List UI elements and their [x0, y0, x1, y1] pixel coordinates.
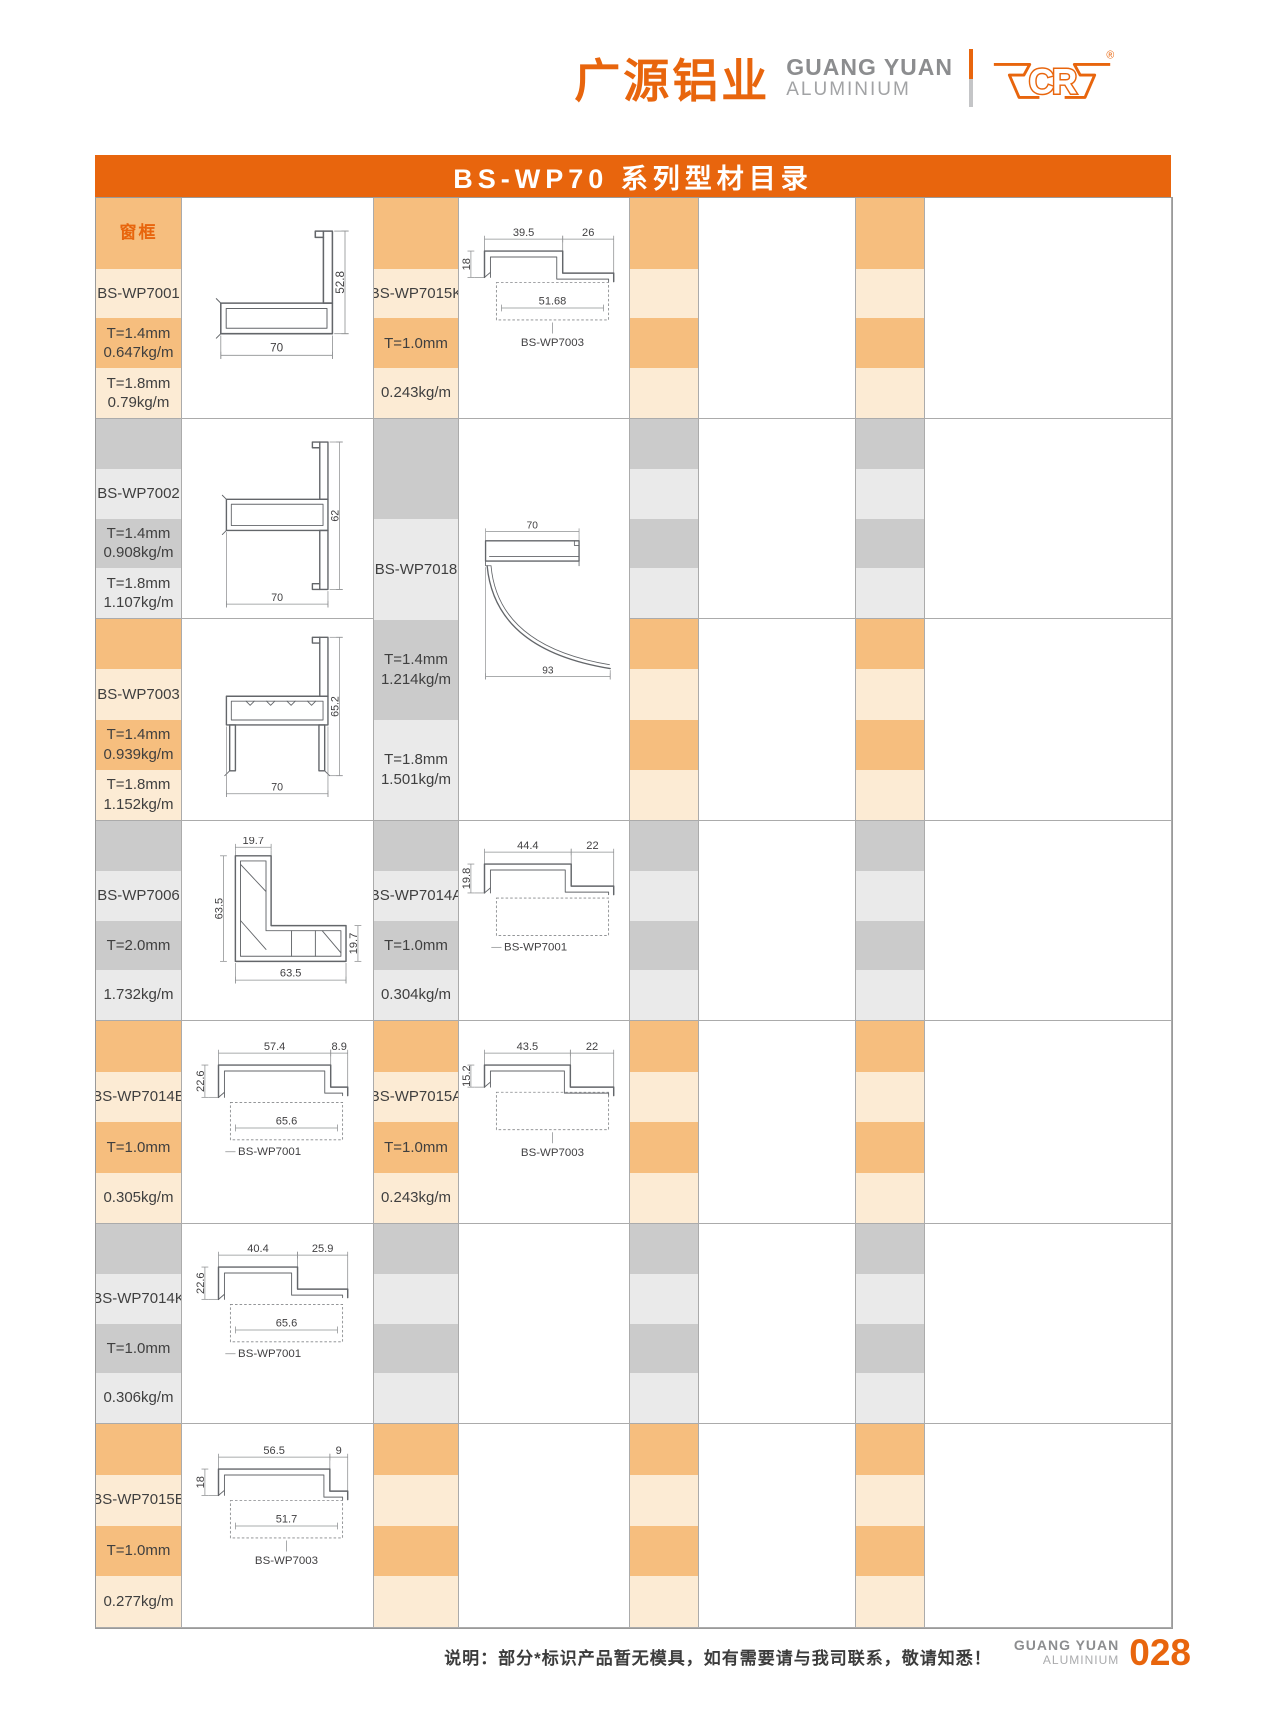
spec-band: T=1.0mm [374, 921, 458, 971]
spec-band [630, 568, 698, 618]
drawing-cell-bs-wp7015a: 43.52215.2BS-WP7003 [459, 1021, 630, 1224]
spec-band [630, 519, 698, 569]
profile-drawing-bs-wp7018: 7093 [462, 519, 626, 720]
product-code-band: BS-WP7018 [374, 519, 458, 619]
spec-band [630, 1122, 698, 1173]
label-cell [630, 419, 699, 619]
empty-cell [925, 198, 1172, 419]
band-header [96, 1021, 181, 1072]
catalog-page: 广源铝业 GUANG YUAN ALUMINIUM CR ® BS-WP70 系… [0, 0, 1277, 1721]
dim-label: 65.2 [329, 696, 341, 717]
drawing-cell-bs-wp7014a: 44.42219.8BS-WP7001 [459, 821, 630, 1021]
dim-label: 51.68 [539, 296, 567, 308]
label-cell [856, 419, 925, 619]
product-code: BS-WP7015B [96, 1490, 182, 1510]
product-code: BS-WP7002 [97, 484, 180, 504]
spec-band [856, 1122, 924, 1173]
band-header [630, 821, 698, 871]
band-header [856, 1224, 924, 1274]
label-cell [856, 1021, 925, 1224]
band-header [630, 619, 698, 669]
companion-label: BS-WP7003 [521, 1147, 584, 1159]
spec-line: T=1.0mm [107, 1339, 171, 1359]
spec-band: 1.732kg/m [96, 970, 181, 1020]
page-header: 广源铝业 GUANG YUAN ALUMINIUM CR ® [0, 0, 1277, 150]
spec-band: T=1.0mm [96, 1122, 181, 1173]
spec-band [630, 970, 698, 1020]
band-header [374, 821, 458, 871]
spec-band: 0.277kg/m [96, 1576, 181, 1627]
spec-band: T=1.0mm [96, 1324, 181, 1374]
dim-label: 19.8 [461, 867, 473, 889]
dim-label: 39.5 [513, 227, 535, 239]
dim-label: 56.5 [263, 1445, 285, 1457]
empty-cell [699, 1424, 856, 1628]
spec-line: T=1.0mm [384, 936, 448, 956]
label-cell [374, 1224, 459, 1424]
spec-line: T=1.8mm [384, 750, 448, 770]
profile-drawing-bs-wp7014b: 57.48.922.665.6BS-WP7001 [193, 1041, 363, 1203]
footer-brand-block: GUANG YUAN ALUMINIUM 028 [1014, 1634, 1191, 1671]
drawing-cell-bs-wp7014b: 57.48.922.665.6BS-WP7001 [182, 1021, 374, 1224]
dim-label: 22 [586, 840, 598, 852]
product-code-band [856, 669, 924, 719]
band-header [856, 1021, 924, 1072]
companion-label: BS-WP7003 [521, 337, 584, 349]
spec-line: T=1.8mm [107, 775, 171, 795]
profile-drawing-bs-wp7015k: 39.5261851.68BS-WP7003 [459, 227, 629, 389]
label-cell-bs-wp7003: BS-WP7003T=1.4mm0.939kg/mT=1.8mm1.152kg/… [96, 619, 182, 821]
product-code-band: BS-WP7014A [374, 871, 458, 921]
spec-band [856, 568, 924, 618]
spec-band [374, 1373, 458, 1423]
profile-drawing-bs-wp7015b: 56.591851.7BS-WP7003 [193, 1445, 363, 1607]
spec-line: T=1.4mm [384, 650, 448, 670]
product-code-band: BS-WP7001 [96, 269, 181, 319]
spec-line: 0.908kg/m [103, 543, 173, 563]
dim-label: 25.9 [311, 1243, 333, 1255]
series-title: BS-WP70 系列型材目录 [453, 157, 813, 196]
band-header [374, 1424, 458, 1475]
spec-band [630, 1576, 698, 1627]
companion-label: BS-WP7001 [238, 1146, 301, 1158]
profile-drawing-bs-wp7006: 19.763.563.519.7 [186, 837, 369, 1004]
category-label: 窗框 [120, 222, 158, 244]
dim-label: 18 [195, 1476, 207, 1488]
band-header [856, 821, 924, 871]
spec-line: T=1.8mm [107, 374, 171, 394]
product-code-band: BS-WP7002 [96, 469, 181, 519]
label-cell [856, 198, 925, 419]
label-cell-bs-wp7015a: BS-WP7015AT=1.0mm0.243kg/m [374, 1021, 459, 1224]
profile-drawing-bs-wp7015a: 43.52215.2BS-WP7003 [459, 1041, 629, 1203]
product-code-band: BS-WP7014B [96, 1072, 181, 1123]
product-code: BS-WP7003 [97, 685, 180, 705]
label-cell-bs-wp7014b: BS-WP7014BT=1.0mm0.305kg/m [96, 1021, 182, 1224]
spec-band [856, 1173, 924, 1224]
spec-band: T=1.0mm [374, 318, 458, 368]
spec-band: 0.306kg/m [96, 1373, 181, 1423]
dim-label: 43.5 [517, 1041, 539, 1053]
dim-label: 70 [271, 591, 283, 603]
band-header [630, 419, 698, 469]
spec-band: T=1.4mm0.908kg/m [96, 519, 181, 569]
dim-label: 15.2 [461, 1065, 473, 1087]
footer-brand-text: GUANG YUAN ALUMINIUM [1014, 1638, 1119, 1667]
spec-line: 0.305kg/m [103, 1188, 173, 1208]
spec-band: T=1.0mm [96, 1526, 181, 1577]
label-cell [630, 1224, 699, 1424]
spec-line: T=1.4mm [107, 324, 171, 344]
spec-line: T=1.0mm [107, 1138, 171, 1158]
product-code: BS-WP7014A [374, 886, 459, 906]
profile-table: 窗框BS-WP7001T=1.4mm0.647kg/mT=1.8mm0.79kg… [95, 197, 1173, 1629]
product-code: BS-WP7018 [375, 560, 458, 580]
spec-line: 0.243kg/m [381, 1188, 451, 1208]
brand-en-line1: GUANG YUAN [786, 55, 953, 79]
spec-line: T=1.0mm [107, 1541, 171, 1561]
band-header [96, 619, 181, 669]
spec-band [374, 1324, 458, 1374]
band-header [96, 1224, 181, 1274]
spec-line: T=1.0mm [384, 334, 448, 354]
brand-divider [969, 49, 973, 107]
product-code-band [630, 1475, 698, 1526]
drawing-cell-bs-wp7006: 19.763.563.519.7 [182, 821, 374, 1021]
dim-label: 65.6 [275, 1317, 297, 1329]
product-code-band: BS-WP7003 [96, 669, 181, 719]
label-cell [856, 821, 925, 1021]
product-code: BS-WP7015K [374, 284, 459, 304]
band-header [856, 419, 924, 469]
band-header [374, 198, 458, 269]
label-cell-bs-wp7015b: BS-WP7015BT=1.0mm0.277kg/m [96, 1424, 182, 1628]
spec-band [630, 770, 698, 820]
dim-label: 19.7 [348, 933, 360, 955]
label-cell-bs-wp7014a: BS-WP7014AT=1.0mm0.304kg/m [374, 821, 459, 1021]
band-header [96, 419, 181, 469]
label-cell-bs-wp7014k: BS-WP7014KT=1.0mm0.306kg/m [96, 1224, 182, 1424]
band-header [96, 821, 181, 871]
drawing-cell-bs-wp7014k: 40.425.922.665.6BS-WP7001 [182, 1224, 374, 1424]
label-cell-bs-wp7006: BS-WP7006T=2.0mm1.732kg/m [96, 821, 182, 1021]
dim-label: 22.6 [195, 1272, 207, 1294]
band-header [630, 198, 698, 269]
spec-line: 0.304kg/m [381, 985, 451, 1005]
empty-cell [699, 619, 856, 821]
label-cell [630, 821, 699, 1021]
spec-line: 1.501kg/m [381, 770, 451, 790]
company-logo-icon: CR ® [989, 42, 1117, 114]
logo-text: CR [1029, 63, 1077, 102]
product-code-band: BS-WP7015A [374, 1072, 458, 1123]
profile-drawing-bs-wp7003: 65.270 [200, 625, 356, 815]
spec-line: 0.647kg/m [103, 343, 173, 363]
product-code-band [374, 1274, 458, 1324]
drawing-cell-bs-wp7001: 52.870 [182, 198, 374, 419]
spec-band: T=1.4mm1.214kg/m [374, 620, 458, 720]
band-header [630, 1424, 698, 1475]
spec-band: T=1.8mm0.79kg/m [96, 368, 181, 418]
profile-drawing-bs-wp7014a: 44.42219.8BS-WP7001 [459, 840, 629, 1002]
drawing-cell-bs-wp7002: 6270 [182, 419, 374, 619]
spec-band: T=2.0mm [96, 921, 181, 971]
spec-band [374, 1576, 458, 1627]
product-code-band: BS-WP7015B [96, 1475, 181, 1526]
product-code-band: BS-WP7014K [96, 1274, 181, 1324]
drawing-cell-bs-wp7018: 7093 [459, 419, 630, 821]
product-code-band [856, 469, 924, 519]
page-number: 028 [1129, 1634, 1191, 1671]
spec-band [856, 1373, 924, 1423]
band-header: 窗框 [96, 198, 181, 269]
footer-brand-line1: GUANG YUAN [1014, 1638, 1119, 1653]
spec-band [856, 921, 924, 971]
band-header [856, 198, 924, 269]
drawing-cell-bs-wp7003: 65.270 [182, 619, 374, 821]
band-header [374, 419, 458, 519]
dim-label: 44.4 [517, 840, 539, 852]
spec-band [856, 368, 924, 418]
product-code-band [630, 669, 698, 719]
spec-line: 0.277kg/m [103, 1592, 173, 1612]
band-header [856, 1424, 924, 1475]
spec-line: 0.939kg/m [103, 745, 173, 765]
empty-cell [459, 1224, 630, 1424]
spec-band: 0.243kg/m [374, 1173, 458, 1224]
band-header [96, 1424, 181, 1475]
brand-name-en: GUANG YUAN ALUMINIUM [786, 55, 953, 100]
spec-band [630, 368, 698, 418]
footer-brand-line2: ALUMINIUM [1014, 1654, 1119, 1667]
spec-line: T=1.0mm [384, 1138, 448, 1158]
product-code-band: BS-WP7015K [374, 269, 458, 319]
spec-line: 0.243kg/m [381, 383, 451, 403]
product-code-band [630, 1072, 698, 1123]
band-header [630, 1021, 698, 1072]
empty-cell [925, 821, 1172, 1021]
label-cell [856, 1424, 925, 1628]
profile-drawing-bs-wp7014k: 40.425.922.665.6BS-WP7001 [193, 1243, 363, 1405]
dim-label: 9 [335, 1445, 341, 1457]
product-code-band [630, 871, 698, 921]
spec-band [630, 318, 698, 368]
product-code: BS-WP7001 [97, 284, 180, 304]
empty-cell [925, 1424, 1172, 1628]
spec-band: T=1.4mm0.939kg/m [96, 720, 181, 770]
spec-line: 1.152kg/m [103, 795, 173, 815]
label-cell [630, 1424, 699, 1628]
label-cell [374, 1424, 459, 1628]
spec-band [630, 921, 698, 971]
spec-band: 0.243kg/m [374, 368, 458, 418]
empty-cell [699, 419, 856, 619]
product-code: BS-WP7014B [96, 1087, 182, 1107]
dim-label: 63.5 [214, 898, 226, 920]
spec-band [630, 720, 698, 770]
dim-label: 19.7 [242, 837, 264, 847]
spec-band: T=1.4mm0.647kg/m [96, 318, 181, 368]
spec-band: T=1.8mm1.501kg/m [374, 720, 458, 820]
spec-band [374, 1526, 458, 1577]
spec-line: 0.306kg/m [103, 1388, 173, 1408]
drawing-cell-bs-wp7015k: 39.5261851.68BS-WP7003 [459, 198, 630, 419]
spec-band [630, 1324, 698, 1374]
dim-label: 8.9 [331, 1041, 346, 1053]
brand-en-line2: ALUMINIUM [786, 80, 953, 101]
registered-mark: ® [1106, 50, 1114, 62]
empty-cell [925, 1224, 1172, 1424]
profile-drawing-bs-wp7002: 6270 [200, 424, 356, 614]
spec-band: 0.304kg/m [374, 970, 458, 1020]
empty-cell [459, 1424, 630, 1628]
label-cell-bs-wp7015k: BS-WP7015KT=1.0mm0.243kg/m [374, 198, 459, 419]
spec-band [856, 1576, 924, 1627]
spec-band [856, 1324, 924, 1374]
product-code-band [856, 1072, 924, 1123]
spec-band [856, 519, 924, 569]
spec-band: T=1.0mm [374, 1122, 458, 1173]
spec-band [856, 970, 924, 1020]
spec-band [856, 318, 924, 368]
dim-label: 57.4 [263, 1041, 285, 1053]
product-code-band [856, 269, 924, 319]
spec-band [630, 1173, 698, 1224]
spec-band: 0.305kg/m [96, 1173, 181, 1224]
series-title-bar: BS-WP70 系列型材目录 [95, 155, 1171, 197]
label-cell [856, 619, 925, 821]
spec-band [630, 1373, 698, 1423]
dim-label: 63.5 [280, 968, 302, 980]
spec-line: 1.732kg/m [103, 985, 173, 1005]
product-code-band [630, 269, 698, 319]
dim-label: 70 [270, 341, 284, 354]
companion-label: BS-WP7003 [254, 1555, 317, 1567]
label-cell [630, 198, 699, 419]
dim-label: 22.6 [195, 1070, 207, 1092]
label-cell-bs-wp7002: BS-WP7002T=1.4mm0.908kg/mT=1.8mm1.107kg/… [96, 419, 182, 619]
empty-cell [925, 419, 1172, 619]
dim-label: 40.4 [247, 1243, 269, 1255]
dim-label: 70 [527, 520, 539, 531]
spec-line: T=1.8mm [107, 574, 171, 594]
profile-drawing-bs-wp7001: 52.870 [192, 213, 363, 404]
drawing-cell-bs-wp7015b: 56.591851.7BS-WP7003 [182, 1424, 374, 1628]
empty-cell [699, 821, 856, 1021]
band-header [856, 619, 924, 669]
spec-band: T=1.8mm1.107kg/m [96, 568, 181, 618]
band-header [630, 1224, 698, 1274]
dim-label: 62 [329, 509, 341, 521]
empty-cell [925, 619, 1172, 821]
band-header [374, 1224, 458, 1274]
dim-label: 65.6 [275, 1116, 297, 1128]
spec-band [856, 770, 924, 820]
label-cell [630, 619, 699, 821]
spec-line: T=1.4mm [107, 725, 171, 745]
spec-line: 1.214kg/m [381, 670, 451, 690]
product-code: BS-WP7006 [97, 886, 180, 906]
product-code-band: BS-WP7006 [96, 871, 181, 921]
label-cell-bs-wp7001: 窗框BS-WP7001T=1.4mm0.647kg/mT=1.8mm0.79kg… [96, 198, 182, 419]
label-cell [630, 1021, 699, 1224]
product-code-band [630, 469, 698, 519]
spec-line: T=1.4mm [107, 524, 171, 544]
product-code-band [630, 1274, 698, 1324]
label-cell [856, 1224, 925, 1424]
spec-band [856, 720, 924, 770]
product-code-band [856, 1475, 924, 1526]
dim-label: 93 [542, 665, 554, 676]
spec-line: 0.79kg/m [108, 393, 170, 413]
empty-cell [699, 1021, 856, 1224]
product-code-band [856, 1274, 924, 1324]
spec-band [630, 1526, 698, 1577]
empty-cell [699, 198, 856, 419]
dim-label: 26 [582, 227, 594, 239]
brand-name-cn: 广源铝业 [574, 45, 770, 111]
dim-label: 52.8 [334, 271, 347, 294]
spec-band [856, 1526, 924, 1577]
spec-band: T=1.8mm1.152kg/m [96, 770, 181, 820]
companion-label: BS-WP7001 [238, 1348, 301, 1360]
spec-line: 1.107kg/m [103, 593, 173, 613]
brand-block: 广源铝业 GUANG YUAN ALUMINIUM CR ® [574, 42, 1117, 114]
dim-label: 70 [271, 781, 283, 793]
dim-label: 22 [586, 1041, 598, 1053]
dim-label: 18 [461, 258, 473, 270]
empty-cell [699, 1224, 856, 1424]
product-code-band [374, 1475, 458, 1526]
label-cell-bs-wp7018: BS-WP7018T=1.4mm1.214kg/mT=1.8mm1.501kg/… [374, 419, 459, 821]
dim-label: 51.7 [275, 1513, 297, 1525]
empty-cell [925, 1021, 1172, 1224]
product-code: BS-WP7015A [374, 1087, 459, 1107]
spec-line: T=2.0mm [107, 936, 171, 956]
product-code: BS-WP7014K [96, 1289, 182, 1309]
band-header [374, 1021, 458, 1072]
companion-label: BS-WP7001 [504, 941, 567, 953]
product-code-band [856, 871, 924, 921]
